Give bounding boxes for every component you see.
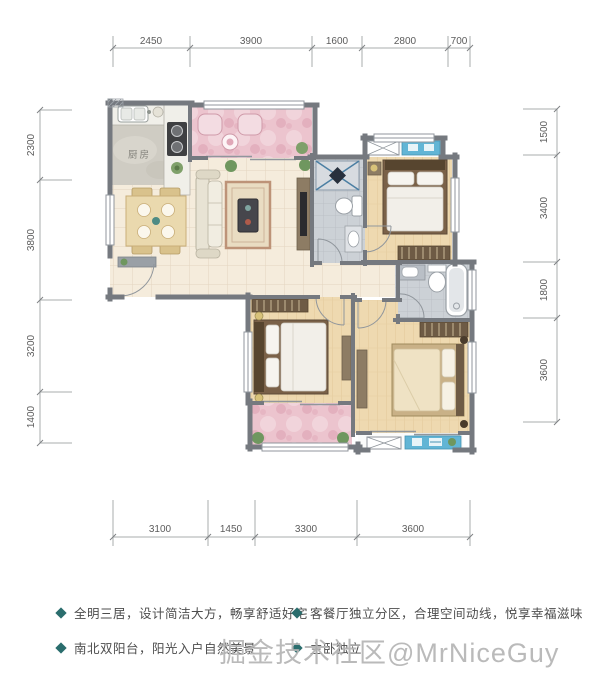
plant-icon [299, 159, 311, 171]
dim-bottom-3: 3300 [295, 524, 318, 535]
laptop-icon [412, 438, 422, 446]
bottom-bay [367, 436, 461, 449]
feature-text: 客餐厅独立分区，合理空间动线，悦享幸福滋味 [310, 603, 583, 622]
dim-bottom-4: 3600 [402, 524, 425, 535]
feature-item-1: 全明三居，设计简洁大方，畅享舒适好宅 [57, 603, 308, 622]
feature-text: 全明三居，设计简洁大方，畅享舒适好宅 [74, 603, 308, 622]
dim-top-2: 3900 [240, 36, 263, 47]
toilet [352, 196, 362, 216]
dim-bottom-1: 3100 [149, 524, 172, 535]
dim-left-3: 3200 [26, 334, 37, 357]
watermark: 掘金技术社区@MrNiceGuy [219, 631, 559, 670]
dim-top-1: 2450 [140, 36, 163, 47]
wardrobe [252, 299, 308, 312]
diamond-bullet-icon [55, 642, 66, 653]
dresser [357, 350, 367, 408]
dim-bottom-2: 1450 [220, 524, 243, 535]
plant-icon [337, 432, 349, 444]
floorplan-page: 2450 3900 1600 2800 700 3100 1450 3300 3… [0, 0, 606, 674]
plant-icon [448, 438, 456, 446]
wardrobe [398, 246, 450, 260]
dim-right-1: 1500 [539, 120, 550, 143]
plant-icon [225, 160, 237, 172]
toilet [428, 265, 446, 272]
top-bay [367, 141, 440, 155]
dim-right-3: 1800 [539, 278, 550, 301]
south-balcony-floor [250, 403, 352, 447]
sofa [196, 176, 209, 252]
dim-top-5: 700 [451, 36, 468, 47]
diamond-bullet-icon [55, 607, 66, 618]
coffee-table [238, 199, 258, 232]
balcony-chair [198, 114, 222, 135]
desk-blue [402, 141, 440, 155]
plant-icon [296, 142, 308, 154]
feature-item-3: 客餐厅独立分区，合理空间动线，悦享幸福滋味 [293, 603, 583, 622]
dim-top-3: 1600 [326, 36, 349, 47]
dim-left-2: 3800 [26, 228, 37, 251]
dim-left-4: 1400 [26, 405, 37, 428]
tv-icon [300, 192, 307, 236]
cabinet [342, 336, 351, 380]
balcony-chair [238, 114, 262, 135]
plant-icon [252, 432, 264, 444]
dim-right-2: 3400 [539, 196, 550, 219]
wardrobe [420, 322, 468, 337]
diamond-bullet-icon [291, 607, 302, 618]
floor-plan-drawing: 2450 3900 1600 2800 700 3100 1450 3300 3… [0, 0, 606, 590]
dim-right-4: 3600 [539, 358, 550, 381]
kitchen-label: 厨房 [128, 149, 151, 161]
dim-left-1: 2300 [26, 133, 37, 156]
dining-area [126, 188, 186, 254]
dim-top-4: 2800 [394, 36, 417, 47]
